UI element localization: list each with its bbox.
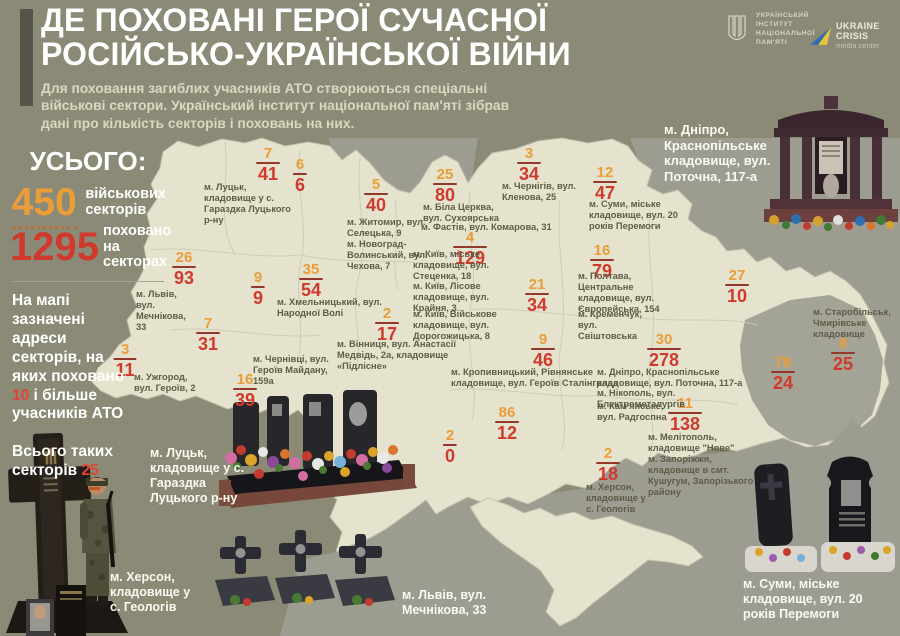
burials-count: 18 [596,464,620,483]
burials-count: 9 [251,288,265,307]
sectors-count: 7 [201,316,215,332]
sector-marker: 20 [443,428,457,465]
sector-marker: 7824 [771,355,795,392]
sector-marker: 2710 [725,268,749,305]
cemetery-address-label: м. Херсон, кладовище у с. Геологів [586,482,650,515]
sectors-count: 21 [526,277,549,293]
burials-count: 31 [196,334,220,353]
photo-caption: м. Дніпро, Краснопільське кладовище, вул… [664,122,792,184]
infographic-root: ДЕ ПОХОВАНІ ГЕРОЇ СУЧАСНОЇ РОСІЙСЬКО-УКР… [0,0,900,636]
sectors-total-label: військових секторів [85,187,166,218]
burials-count: 0 [443,446,457,465]
sector-marker: 2580 [433,167,457,204]
sectors-count: 12 [594,165,617,181]
totals-heading: УСЬОГО: [10,146,166,177]
cross-grave [335,534,395,606]
cemetery-address-label: м. Чернігів, вул. Кленова, 25 [502,181,590,203]
sectors-count: 7 [261,146,275,162]
burials-count: 24 [771,373,795,392]
cemetery-address-label: м. Чернівці, вул. Героїв Майдану, 159а [253,354,345,387]
cemetery-address-label: м. Дніпро, Краснопільське кладовище, вул… [597,367,765,389]
burials-count: 12 [495,423,519,442]
photo-caption: м. Львів, вул. Мечнікова, 33 [402,588,542,618]
burials-total-label: поховано на секторах [103,224,171,271]
burials-count: 39 [233,390,257,409]
photo-caption: м. Суми, міське кладовище, вул. 20 років… [743,577,895,622]
photo-caption: м. Херсон, кладовище у с. Геологів [110,570,202,615]
cemetery-address-label: м. Луцьк, кладовище у с. Гараздка Луцько… [204,182,292,226]
cross-grave [215,536,275,606]
sectors-count: 2 [601,446,615,462]
burials-count: 41 [256,164,280,183]
sector-marker: 540 [364,177,388,214]
cemetery-address-label: м. Хмельницький, вул. Народної Волі [277,297,395,319]
sectors-count: 2 [443,428,457,444]
burials-count: 93 [172,268,196,287]
cemetery-address-label: м. Мелітополь, кладовище "Нове" [648,432,766,454]
sector-marker: 3554 [299,262,323,299]
sectors-count: 6 [293,157,307,173]
burials-total: 1295 [10,227,96,267]
sector-marker: 218 [596,446,620,483]
sector-marker: 731 [196,316,220,353]
burials-count: 138 [668,414,702,433]
burials-count: 10 [725,286,749,305]
sector-marker: 334 [517,146,541,183]
sectors-count: 35 [300,262,323,278]
sectors-count: 9 [251,270,265,286]
cemetery-address-label: м. Кременчук, вул. Свіштовська [578,309,658,342]
cross-grave [275,530,335,604]
sectors-count: 9 [536,332,550,348]
sector-marker: 946 [531,332,555,369]
stats-divider [12,281,164,282]
sector-marker: 1247 [593,165,617,202]
burials-count: 25 [831,354,855,373]
sector-marker: 8612 [495,405,519,442]
cemetery-address-label: м. Біла Церква, вул. Сухоярська [423,202,515,224]
sector-marker: 99 [251,270,265,307]
photo-caption: м. Луцьк, кладовище у с. Гараздка Луцько… [150,446,248,506]
burials-count: 40 [364,195,388,214]
shown-sectors-number: 25 [81,462,98,479]
cemetery-address-label: м. Київ, Військове кладовище, вул. Дорог… [413,309,513,342]
photo-lviv-crosses [205,528,405,636]
sectors-count: 3 [522,146,536,162]
cemetery-address-label: м. Київ, міське кладовище, вул. Стеценка… [413,249,505,282]
sector-marker: 825 [831,336,855,373]
sector-marker: 2134 [525,277,549,314]
totals-panel: УСЬОГО: 450 військових секторів 1295 пох… [10,146,166,481]
cemetery-address-label: м. Кам'янське, вул. Радгоспна [597,401,669,423]
sectors-count: 5 [369,177,383,193]
sectors-shown-note: Всього таких секторів 25 [12,443,134,481]
cemetery-address-label: м. Вінниця, вул. Анастасії Медвідь, 2а, … [337,339,457,372]
cemetery-address-label: м. Фастів, вул. Комарова, 31 [421,222,591,233]
sector-marker: 741 [256,146,280,183]
sectors-count: 86 [496,405,519,421]
sector-marker: 66 [293,157,307,194]
map-note: На мапі зазначені адреси секторів, на як… [12,292,134,424]
sectors-count: 25 [434,167,457,183]
sectors-count: 27 [726,268,749,284]
sectors-total: 450 [10,183,78,222]
burials-count: 6 [293,175,307,194]
sectors-count: 78 [772,355,795,371]
cemetery-address-label: м. Суми, міське кладовище, вул. 20 років… [589,199,681,232]
sectors-count: 16 [591,243,614,259]
cemetery-address-label: м. Старобільськ, Чмирівське кладовище [813,307,893,340]
sector-marker: 2693 [172,250,196,287]
sectors-count: 26 [173,250,196,266]
burials-count: 34 [525,295,549,314]
cemetery-address-label: м. Запоріжжя, кладовище в смт. Кушугум, … [648,454,762,498]
threshold-number: 10 [12,387,29,404]
